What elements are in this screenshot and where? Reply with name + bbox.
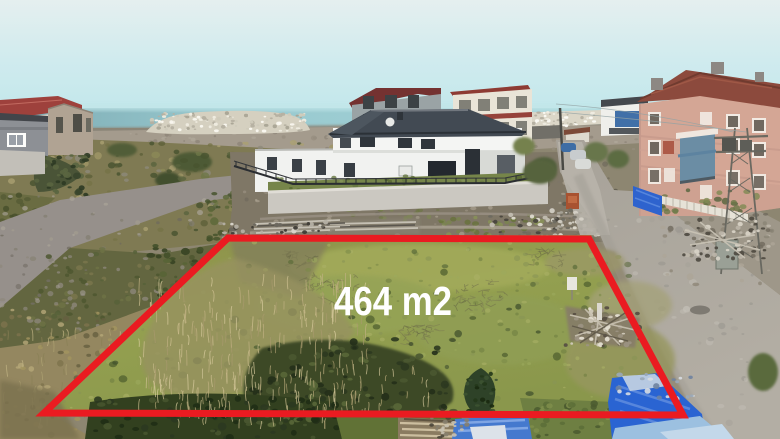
svg-text:464 m2: 464 m2: [334, 278, 452, 324]
